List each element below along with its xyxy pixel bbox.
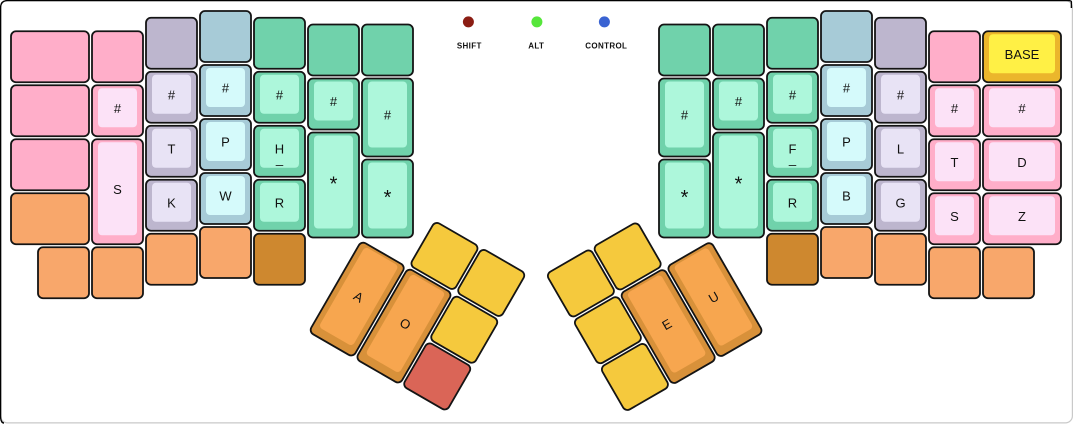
svg-text:#: # (384, 108, 392, 123)
svg-text:D: D (1017, 155, 1026, 170)
svg-text:R: R (788, 195, 797, 210)
svg-text:#: # (789, 87, 797, 102)
svg-text:ALT: ALT (528, 42, 544, 51)
svg-text:SHIFT: SHIFT (457, 42, 482, 51)
svg-text:_: _ (788, 151, 797, 166)
svg-text:L: L (897, 141, 904, 156)
svg-text:*: * (735, 174, 743, 196)
svg-text:T: T (168, 141, 176, 156)
svg-text:#: # (168, 87, 176, 102)
svg-text:#: # (681, 108, 689, 123)
svg-text:#: # (1018, 101, 1026, 116)
svg-text:CONTROL: CONTROL (585, 42, 627, 51)
svg-text:K: K (167, 195, 176, 210)
svg-text:*: * (681, 187, 689, 209)
svg-text:P: P (842, 135, 851, 150)
svg-text:*: * (384, 187, 392, 209)
svg-text:BASE: BASE (1005, 47, 1040, 62)
svg-text:#: # (222, 81, 230, 96)
svg-text:T: T (951, 155, 959, 170)
svg-text:G: G (895, 195, 905, 210)
svg-text:#: # (114, 101, 122, 116)
svg-text:R: R (275, 195, 284, 210)
svg-text:*: * (330, 174, 338, 196)
svg-text:Z: Z (1018, 209, 1026, 224)
svg-text:#: # (897, 87, 905, 102)
svg-text:P: P (221, 135, 230, 150)
svg-text:W: W (219, 189, 232, 204)
svg-text:#: # (276, 87, 284, 102)
svg-text:#: # (735, 94, 743, 109)
svg-text:B: B (842, 189, 851, 204)
svg-text:S: S (113, 182, 122, 197)
svg-text:#: # (951, 101, 959, 116)
svg-text:_: _ (275, 151, 284, 166)
svg-text:#: # (843, 81, 851, 96)
svg-text:#: # (330, 94, 338, 109)
svg-text:S: S (950, 209, 959, 224)
